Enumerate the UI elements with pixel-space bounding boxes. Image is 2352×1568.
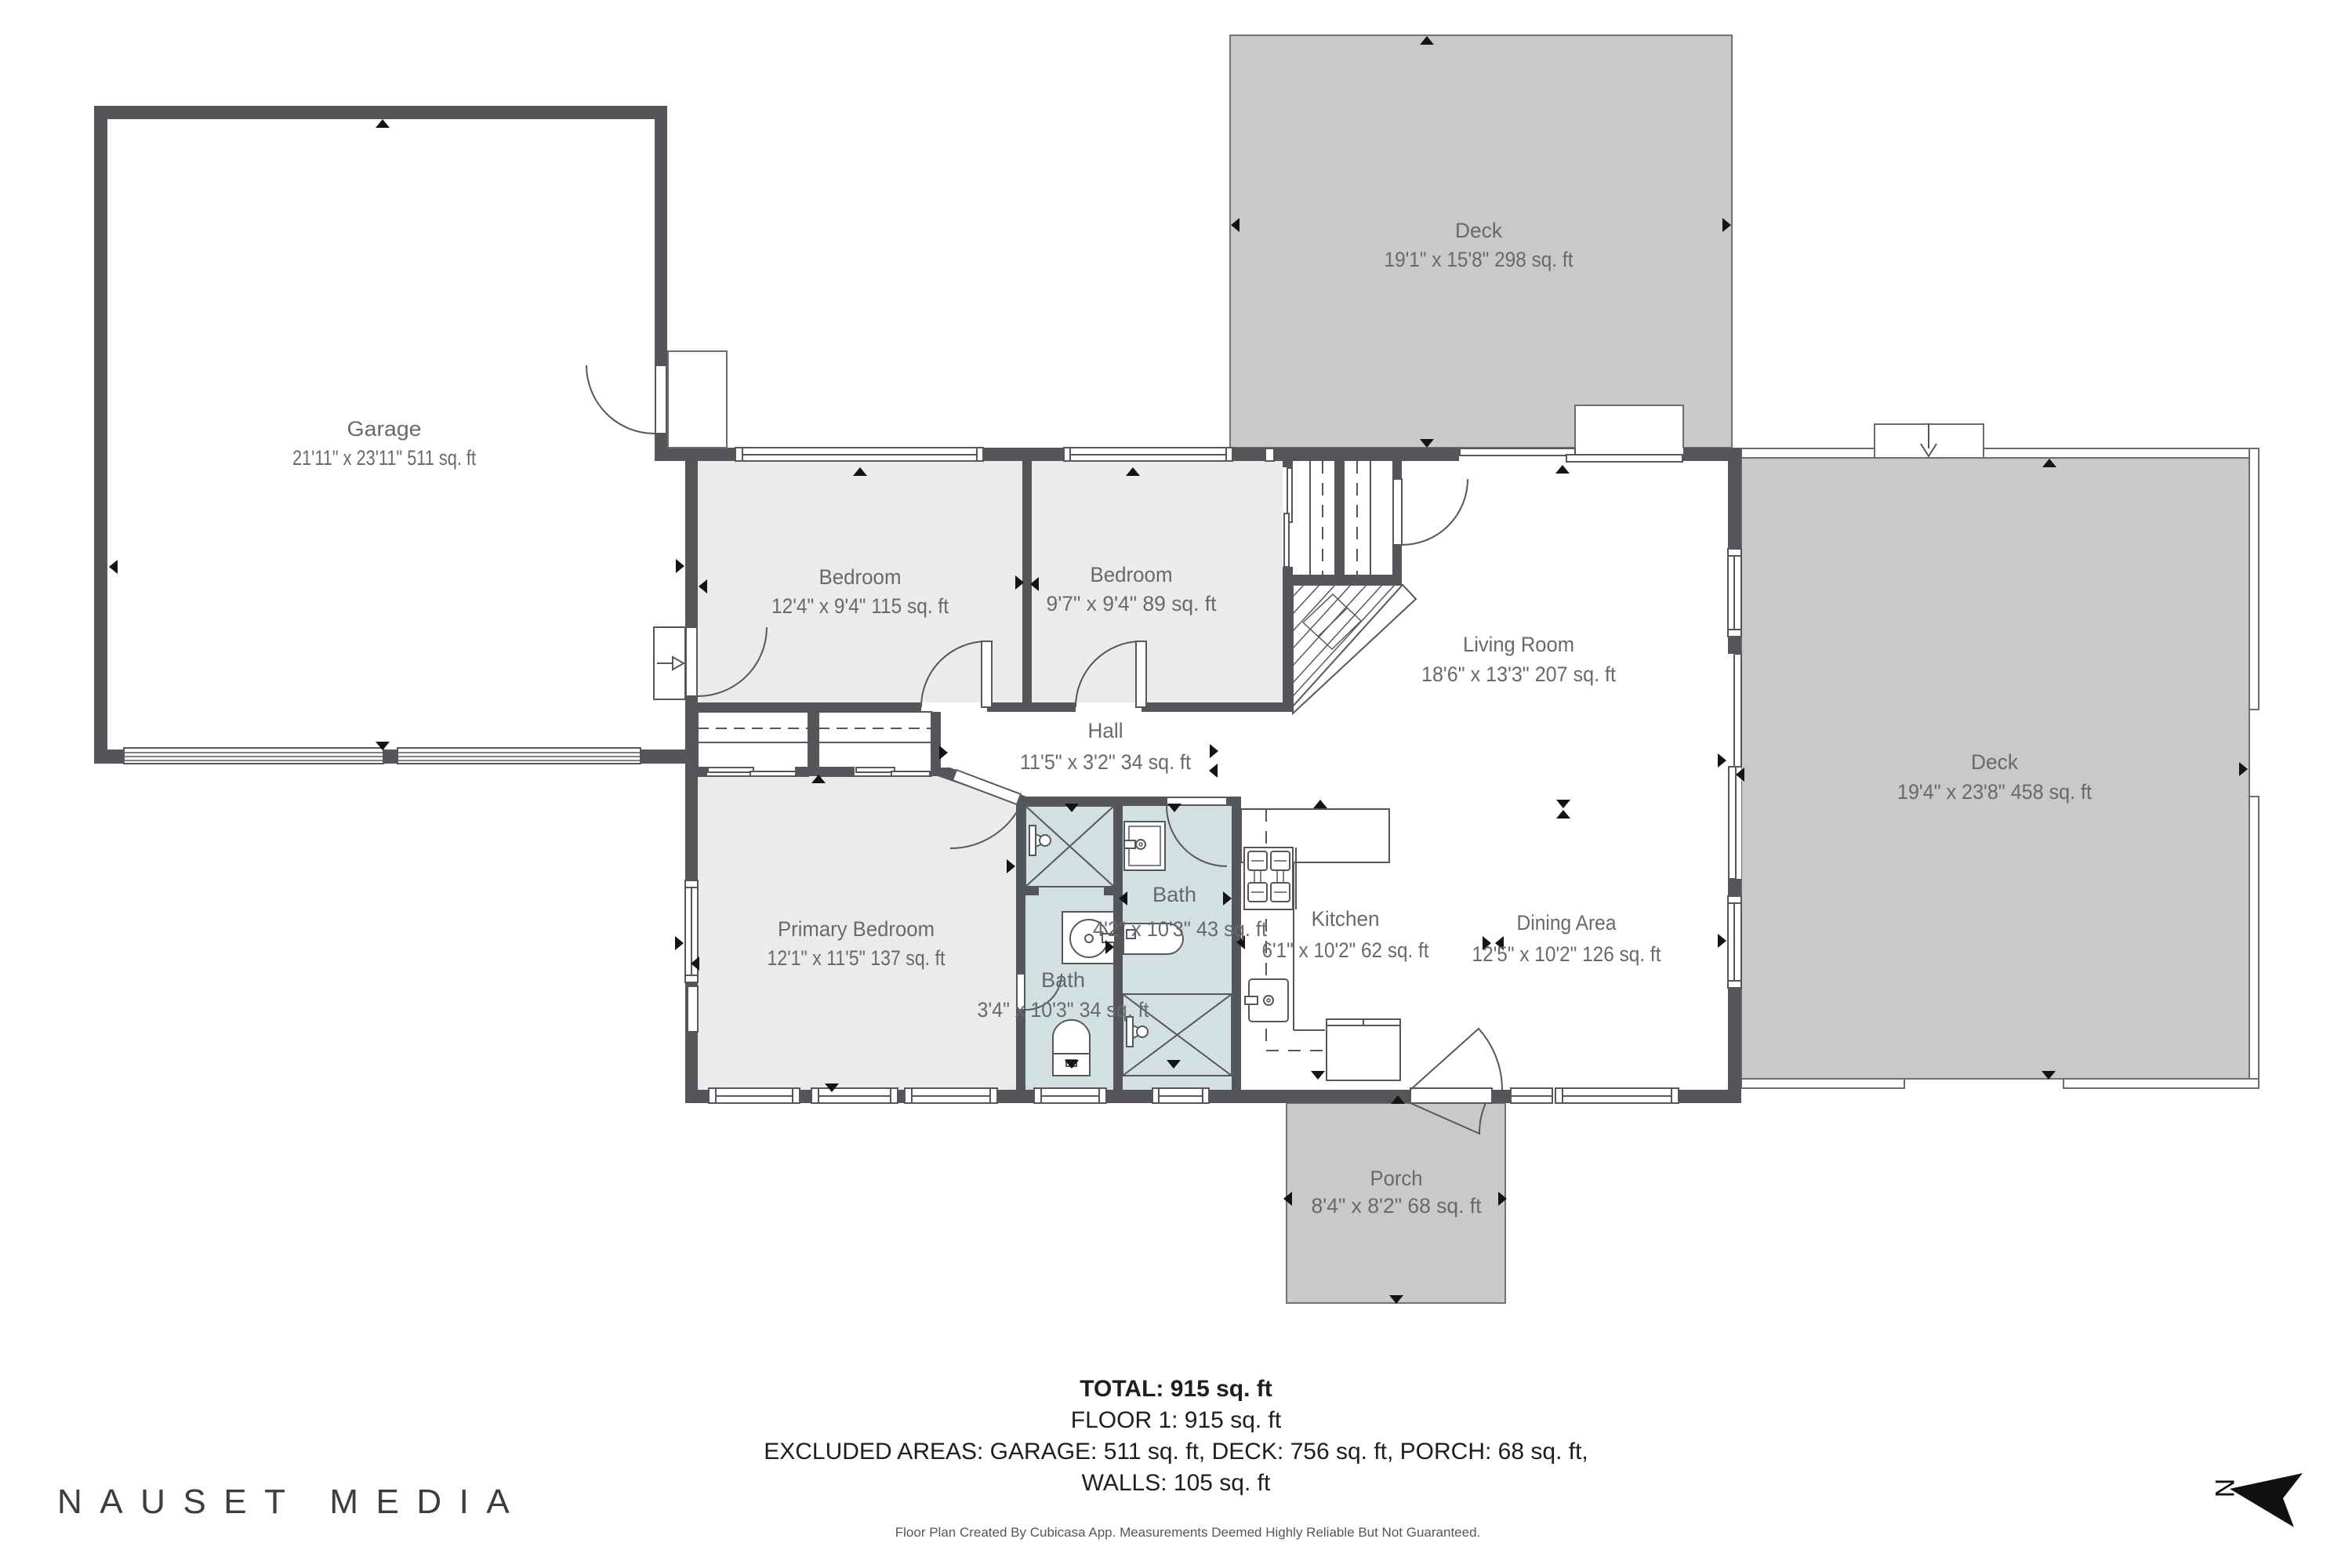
svg-text:18'6" x 13'3" 207 sq. ft: 18'6" x 13'3" 207 sq. ft bbox=[1421, 662, 1616, 686]
svg-text:NAUSET MEDIA: NAUSET MEDIA bbox=[57, 1483, 527, 1521]
svg-text:Kitchen: Kitchen bbox=[1312, 907, 1380, 931]
svg-text:3'4" x 10'3" 34 sq. ft: 3'4" x 10'3" 34 sq. ft bbox=[978, 998, 1149, 1022]
svg-text:4'2" x 10'3" 43 sq. ft: 4'2" x 10'3" 43 sq. ft bbox=[1093, 917, 1267, 941]
svg-text:Hall: Hall bbox=[1088, 719, 1123, 742]
svg-text:6'1" x 10'2" 62 sq. ft: 6'1" x 10'2" 62 sq. ft bbox=[1262, 938, 1429, 962]
svg-text:12'5" x 10'2" 126 sq. ft: 12'5" x 10'2" 126 sq. ft bbox=[1472, 942, 1661, 966]
svg-text:9'7" x 9'4" 89 sq. ft: 9'7" x 9'4" 89 sq. ft bbox=[1047, 592, 1217, 615]
svg-text:TOTAL: 915 sq. ft: TOTAL: 915 sq. ft bbox=[1080, 1376, 1272, 1402]
svg-text:Bath: Bath bbox=[1152, 883, 1196, 906]
svg-text:Bath: Bath bbox=[1041, 968, 1085, 992]
svg-text:19'1" x 15'8" 298 sq. ft: 19'1" x 15'8" 298 sq. ft bbox=[1385, 248, 1573, 271]
svg-text:Deck: Deck bbox=[1455, 219, 1502, 242]
svg-text:19'4" x 23'8" 458 sq. ft: 19'4" x 23'8" 458 sq. ft bbox=[1897, 780, 2092, 804]
svg-text:12'1" x 11'5" 137 sq. ft: 12'1" x 11'5" 137 sq. ft bbox=[768, 946, 946, 970]
svg-text:FLOOR 1: 915 sq. ft: FLOOR 1: 915 sq. ft bbox=[1071, 1407, 1282, 1433]
svg-text:Bedroom: Bedroom bbox=[1091, 563, 1173, 586]
svg-text:Living Room: Living Room bbox=[1463, 633, 1574, 656]
svg-text:Primary Bedroom: Primary Bedroom bbox=[778, 917, 935, 941]
svg-text:8'4" x 8'2" 68 sq. ft: 8'4" x 8'2" 68 sq. ft bbox=[1312, 1194, 1482, 1218]
svg-text:Deck: Deck bbox=[1971, 750, 2018, 774]
svg-text:11'5" x 3'2" 34 sq. ft: 11'5" x 3'2" 34 sq. ft bbox=[1020, 750, 1191, 774]
svg-text:Floor Plan Created By Cubicasa: Floor Plan Created By Cubicasa App. Meas… bbox=[895, 1525, 1481, 1540]
svg-text:Garage: Garage bbox=[347, 417, 422, 441]
svg-text:WALLS: 105 sq. ft: WALLS: 105 sq. ft bbox=[1082, 1470, 1271, 1496]
svg-text:Dining Area: Dining Area bbox=[1517, 911, 1617, 935]
svg-text:EXCLUDED AREAS: GARAGE: 511 sq: EXCLUDED AREAS: GARAGE: 511 sq. ft, DECK… bbox=[764, 1439, 1588, 1465]
svg-text:Porch: Porch bbox=[1370, 1167, 1423, 1190]
svg-text:12'4" x 9'4" 115 sq. ft: 12'4" x 9'4" 115 sq. ft bbox=[771, 594, 949, 618]
svg-text:Bedroom: Bedroom bbox=[819, 565, 902, 589]
svg-text:21'11" x 23'11" 511 sq. ft: 21'11" x 23'11" 511 sq. ft bbox=[292, 446, 476, 470]
